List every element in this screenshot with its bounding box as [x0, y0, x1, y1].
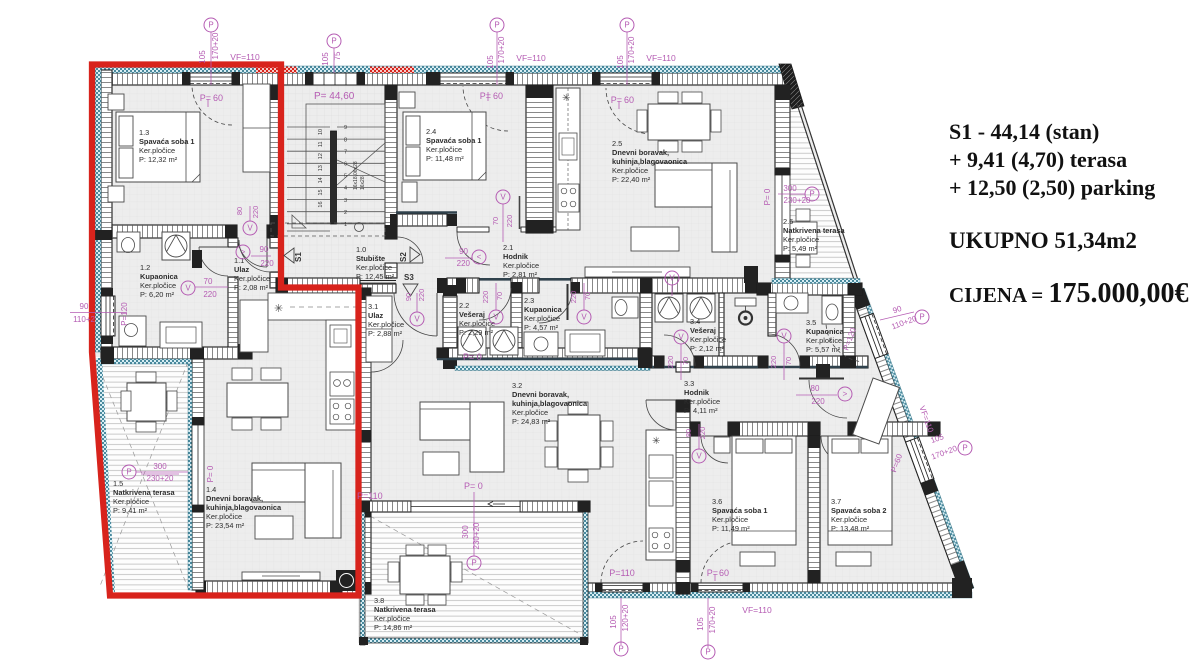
- svg-text:V: V: [781, 332, 787, 341]
- svg-text:170+20: 170+20: [708, 606, 717, 633]
- svg-text:80: 80: [811, 384, 820, 393]
- svg-text:Ker.pločice: Ker.pločice: [206, 512, 242, 521]
- svg-text:110+2: 110+2: [73, 315, 95, 324]
- svg-text:V: V: [696, 452, 702, 461]
- svg-text:V: V: [185, 284, 191, 293]
- svg-text:90: 90: [260, 245, 269, 254]
- svg-text:70: 70: [204, 277, 213, 286]
- svg-text:105: 105: [696, 617, 705, 631]
- svg-text:V: V: [669, 274, 675, 283]
- svg-text:<: <: [477, 253, 482, 262]
- svg-text:3.8: 3.8: [374, 596, 384, 605]
- svg-text:220: 220: [251, 206, 260, 219]
- svg-text:>: >: [241, 248, 246, 257]
- svg-text:10: 10: [318, 129, 324, 135]
- svg-text:VF=110: VF=110: [742, 605, 772, 615]
- svg-text:V: V: [247, 224, 253, 233]
- svg-text:170+20: 170+20: [497, 36, 506, 63]
- svg-text:Spavaća soba 2: Spavaća soba 2: [831, 506, 886, 515]
- svg-text:P: 24,83 m²: P: 24,83 m²: [512, 417, 551, 426]
- svg-text:75: 75: [333, 51, 342, 60]
- svg-text:>: >: [843, 390, 848, 399]
- svg-text:1.2: 1.2: [140, 263, 150, 272]
- svg-text:V: V: [581, 313, 587, 322]
- svg-text:P=110: P=110: [357, 491, 383, 501]
- svg-text:80: 80: [684, 429, 693, 437]
- svg-text:220: 220: [457, 259, 471, 268]
- svg-text:Ker.pločice: Ker.pločice: [426, 145, 462, 154]
- svg-text:P: 2,81 m²: P: 2,81 m²: [503, 270, 538, 279]
- svg-text:P: 5,57 m²: P: 5,57 m²: [806, 345, 841, 354]
- svg-text:90: 90: [459, 247, 468, 256]
- svg-text:15: 15: [318, 189, 324, 195]
- svg-text:P: P: [208, 21, 213, 30]
- svg-text:4: 4: [344, 186, 347, 192]
- svg-text:14: 14: [318, 177, 324, 183]
- svg-text:220: 220: [769, 356, 778, 369]
- svg-text:Natkrivena terasa: Natkrivena terasa: [783, 226, 846, 235]
- svg-text:P: P: [126, 468, 131, 477]
- svg-text:P: 23,54 m²: P: 23,54 m²: [206, 521, 245, 530]
- svg-text:+ 12,50 (2,50) parking: + 12,50 (2,50) parking: [949, 175, 1155, 200]
- svg-text:P: P: [331, 37, 336, 46]
- svg-text:kuhinja,blagovaonica: kuhinja,blagovaonica: [206, 503, 282, 512]
- svg-text:Spavaća soba 1: Spavaća soba 1: [426, 136, 481, 145]
- svg-text:Ker.pločice: Ker.pločice: [139, 146, 175, 155]
- svg-text:105: 105: [198, 50, 207, 64]
- svg-text:2.3: 2.3: [524, 296, 534, 305]
- svg-text:P=120: P=120: [120, 302, 129, 326]
- svg-text:70: 70: [495, 292, 504, 300]
- svg-text:P: 22,40 m²: P: 22,40 m²: [612, 175, 651, 184]
- svg-text:Ker.pločice: Ker.pločice: [503, 261, 539, 270]
- svg-text:Ker.pločice: Ker.pločice: [374, 614, 410, 623]
- svg-text:70: 70: [583, 292, 592, 300]
- svg-text:1.5: 1.5: [113, 479, 123, 488]
- svg-text:60: 60: [624, 95, 634, 105]
- svg-text:P: P: [618, 645, 623, 654]
- svg-text:Kupaonica: Kupaonica: [806, 327, 845, 336]
- svg-text:3.2: 3.2: [512, 381, 522, 390]
- svg-text:P: 4,57 m²: P: 4,57 m²: [524, 323, 559, 332]
- svg-text:P: 12,32 m²: P: 12,32 m²: [139, 155, 178, 164]
- svg-text:Ker.pločice: Ker.pločice: [684, 397, 720, 406]
- svg-text:3: 3: [344, 198, 347, 204]
- svg-text:Ker.pločice: Ker.pločice: [806, 336, 842, 345]
- svg-text:Natkrivena terasa: Natkrivena terasa: [374, 605, 437, 614]
- svg-text:Ker.pločice: Ker.pločice: [612, 166, 648, 175]
- svg-text:11: 11: [318, 141, 324, 147]
- svg-text:VF=110: VF=110: [646, 53, 676, 63]
- svg-text:P=: P=: [707, 568, 718, 578]
- svg-text:kuhinja,blagovaonica: kuhinja,blagovaonica: [612, 157, 688, 166]
- svg-text:60: 60: [493, 91, 503, 101]
- svg-text:P= 44,60: P= 44,60: [314, 91, 355, 102]
- svg-text:P: P: [624, 21, 629, 30]
- svg-text:Ker.pločice: Ker.pločice: [712, 515, 748, 524]
- svg-text:12: 12: [318, 153, 324, 159]
- svg-text:V: V: [493, 313, 499, 322]
- svg-text:230+20: 230+20: [784, 196, 811, 205]
- svg-text:90: 90: [404, 293, 413, 301]
- svg-text:P: P: [494, 21, 499, 30]
- svg-text:P= 0: P= 0: [763, 188, 772, 205]
- svg-text:Ker.pločice: Ker.pločice: [113, 497, 149, 506]
- svg-text:S1 - 44,14 (stan): S1 - 44,14 (stan): [949, 119, 1099, 144]
- svg-text:Ker.pločice: Ker.pločice: [690, 335, 726, 344]
- svg-text:VF=110: VF=110: [230, 52, 260, 62]
- svg-text:13: 13: [318, 165, 324, 171]
- svg-text:8: 8: [344, 137, 347, 143]
- svg-text:105: 105: [616, 55, 625, 69]
- svg-text:120+20: 120+20: [621, 604, 630, 631]
- svg-text:16x18,06x28: 16x18,06x28: [353, 161, 359, 190]
- svg-text:P=: P=: [200, 93, 211, 103]
- svg-text:105: 105: [486, 55, 495, 69]
- svg-text:S2: S2: [399, 252, 408, 262]
- svg-text:S1: S1: [294, 252, 303, 262]
- svg-text:P: 6,20 m²: P: 6,20 m²: [140, 290, 175, 299]
- svg-text:3.6: 3.6: [712, 497, 722, 506]
- svg-text:UKUPNO 51,34m2: UKUPNO 51,34m2: [949, 228, 1137, 253]
- svg-text:1.0: 1.0: [356, 245, 366, 254]
- svg-text:Hodnik: Hodnik: [503, 252, 529, 261]
- svg-text:170+20: 170+20: [211, 32, 220, 59]
- svg-text:Vešeraj: Vešeraj: [690, 326, 716, 335]
- svg-text:P: 2,08 m²: P: 2,08 m²: [234, 283, 269, 292]
- svg-text:220: 220: [505, 215, 514, 228]
- svg-text:Vešeraj: Vešeraj: [459, 310, 485, 319]
- svg-text:Ulaz: Ulaz: [234, 265, 250, 274]
- svg-text:80: 80: [235, 207, 244, 215]
- svg-text:Ker.pločice: Ker.pločice: [512, 408, 548, 417]
- svg-text:220: 220: [698, 427, 707, 440]
- svg-text:Spavaća soba 1: Spavaća soba 1: [712, 506, 767, 515]
- svg-text:220: 220: [260, 259, 274, 268]
- svg-text:P: 2,29 m²: P: 2,29 m²: [459, 328, 494, 337]
- svg-text:3.7: 3.7: [831, 497, 841, 506]
- svg-text:170+20: 170+20: [627, 36, 636, 63]
- svg-text:Kupaonica: Kupaonica: [524, 305, 563, 314]
- svg-text:300: 300: [153, 462, 167, 471]
- svg-text:kuhinja,blagovaonica: kuhinja,blagovaonica: [512, 399, 588, 408]
- svg-text:P= 0: P= 0: [464, 481, 483, 491]
- svg-text:P: 13,48 m²: P: 13,48 m²: [831, 524, 870, 533]
- svg-text:60: 60: [719, 568, 729, 578]
- svg-text:105: 105: [609, 615, 618, 629]
- svg-text:Dnevni boravak,: Dnevni boravak,: [206, 494, 263, 503]
- svg-text:VF=110: VF=110: [516, 53, 546, 63]
- svg-text:P: 2,88 m²: P: 2,88 m²: [368, 329, 403, 338]
- svg-text:220: 220: [481, 291, 490, 304]
- svg-text:P: 2,12 m²: P: 2,12 m²: [690, 344, 725, 353]
- svg-text:P: P: [962, 444, 967, 453]
- svg-text:✳: ✳: [652, 436, 660, 447]
- svg-text:✳: ✳: [274, 303, 283, 315]
- svg-text:+ 9,41 (4,70) terasa: + 9,41 (4,70) terasa: [949, 147, 1127, 172]
- svg-text:230+20: 230+20: [147, 474, 174, 483]
- svg-text:V: V: [414, 315, 420, 324]
- svg-text:P: P: [471, 559, 476, 568]
- svg-text:90: 90: [80, 302, 89, 311]
- svg-text:V: V: [678, 333, 684, 342]
- svg-text:Kupaonica: Kupaonica: [140, 272, 179, 281]
- svg-text:220: 220: [811, 397, 825, 406]
- svg-text:3.4: 3.4: [690, 317, 700, 326]
- svg-text:3.5: 3.5: [806, 318, 816, 327]
- svg-text:P: 4,11 m²: P: 4,11 m²: [684, 406, 718, 415]
- svg-text:16x28: 16x28: [360, 176, 366, 190]
- svg-text:300: 300: [461, 525, 470, 539]
- svg-text:P= 0: P= 0: [463, 352, 482, 362]
- svg-text:1.4: 1.4: [206, 485, 216, 494]
- svg-text:220: 220: [203, 290, 217, 299]
- svg-text:220: 220: [417, 289, 426, 302]
- svg-text:3.1: 3.1: [368, 302, 378, 311]
- svg-text:2.1: 2.1: [503, 243, 513, 252]
- svg-text:P: P: [705, 648, 710, 657]
- svg-text:P: 12,45 m²: P: 12,45 m²: [356, 272, 395, 281]
- svg-text:1.3: 1.3: [139, 128, 149, 137]
- svg-text:P=: P=: [480, 91, 491, 101]
- svg-text:16: 16: [318, 201, 324, 207]
- svg-text:2: 2: [344, 210, 347, 216]
- svg-text:Ker.pločice: Ker.pločice: [234, 274, 270, 283]
- svg-text:300: 300: [783, 184, 797, 193]
- svg-text:70: 70: [784, 357, 793, 365]
- svg-text:2.6: 2.6: [783, 217, 793, 226]
- svg-text:P= 0: P= 0: [206, 465, 215, 482]
- svg-text:Ker.pločice: Ker.pločice: [368, 320, 404, 329]
- svg-text:Natkrivena terasa: Natkrivena terasa: [113, 488, 176, 497]
- svg-text:Hodnik: Hodnik: [684, 388, 710, 397]
- svg-text:70: 70: [491, 217, 500, 225]
- svg-text:✳: ✳: [562, 93, 570, 104]
- svg-text:Ker.pločice: Ker.pločice: [356, 263, 392, 272]
- svg-text:P=: P=: [611, 95, 622, 105]
- svg-text:P=110: P=110: [609, 568, 635, 578]
- svg-text:105: 105: [321, 52, 330, 66]
- svg-text:Ker.pločice: Ker.pločice: [140, 281, 176, 290]
- svg-text:Ker.pločice: Ker.pločice: [831, 515, 867, 524]
- svg-text:Dnevni boravak,: Dnevni boravak,: [512, 390, 569, 399]
- svg-text:220: 220: [569, 291, 578, 304]
- svg-text:Ker.pločice: Ker.pločice: [524, 314, 560, 323]
- svg-text:S3: S3: [404, 273, 414, 282]
- svg-text:220: 220: [666, 356, 675, 369]
- svg-text:Spavaća soba 1: Spavaća soba 1: [139, 137, 194, 146]
- svg-text:7: 7: [344, 149, 347, 155]
- svg-text:2.5: 2.5: [612, 139, 622, 148]
- svg-text:2.4: 2.4: [426, 127, 436, 136]
- svg-text:V: V: [500, 193, 506, 202]
- svg-text:P: 5,49 m²: P: 5,49 m²: [783, 244, 818, 253]
- svg-text:Ker.pločice: Ker.pločice: [783, 235, 819, 244]
- svg-text:CIJENA = 175.000,00€: CIJENA = 175.000,00€: [949, 278, 1188, 309]
- svg-text:P: 14,86 m²: P: 14,86 m²: [374, 623, 413, 632]
- svg-text:70: 70: [681, 357, 690, 365]
- svg-text:P: 11,48 m²: P: 11,48 m²: [426, 154, 464, 163]
- svg-text:60: 60: [213, 93, 223, 103]
- svg-text:P: 11,49 m²: P: 11,49 m²: [712, 524, 750, 533]
- svg-text:P: P: [919, 313, 924, 322]
- svg-text:9: 9: [344, 125, 347, 131]
- svg-text:2.2: 2.2: [459, 301, 469, 310]
- svg-text:Ulaz: Ulaz: [368, 311, 384, 320]
- svg-text:Stubište: Stubište: [356, 254, 385, 263]
- svg-text:230+20: 230+20: [472, 522, 481, 549]
- svg-text:P: 9,41 m²: P: 9,41 m²: [113, 506, 148, 515]
- svg-text:Dnevni boravak,: Dnevni boravak,: [612, 148, 669, 157]
- svg-text:3.3: 3.3: [684, 379, 694, 388]
